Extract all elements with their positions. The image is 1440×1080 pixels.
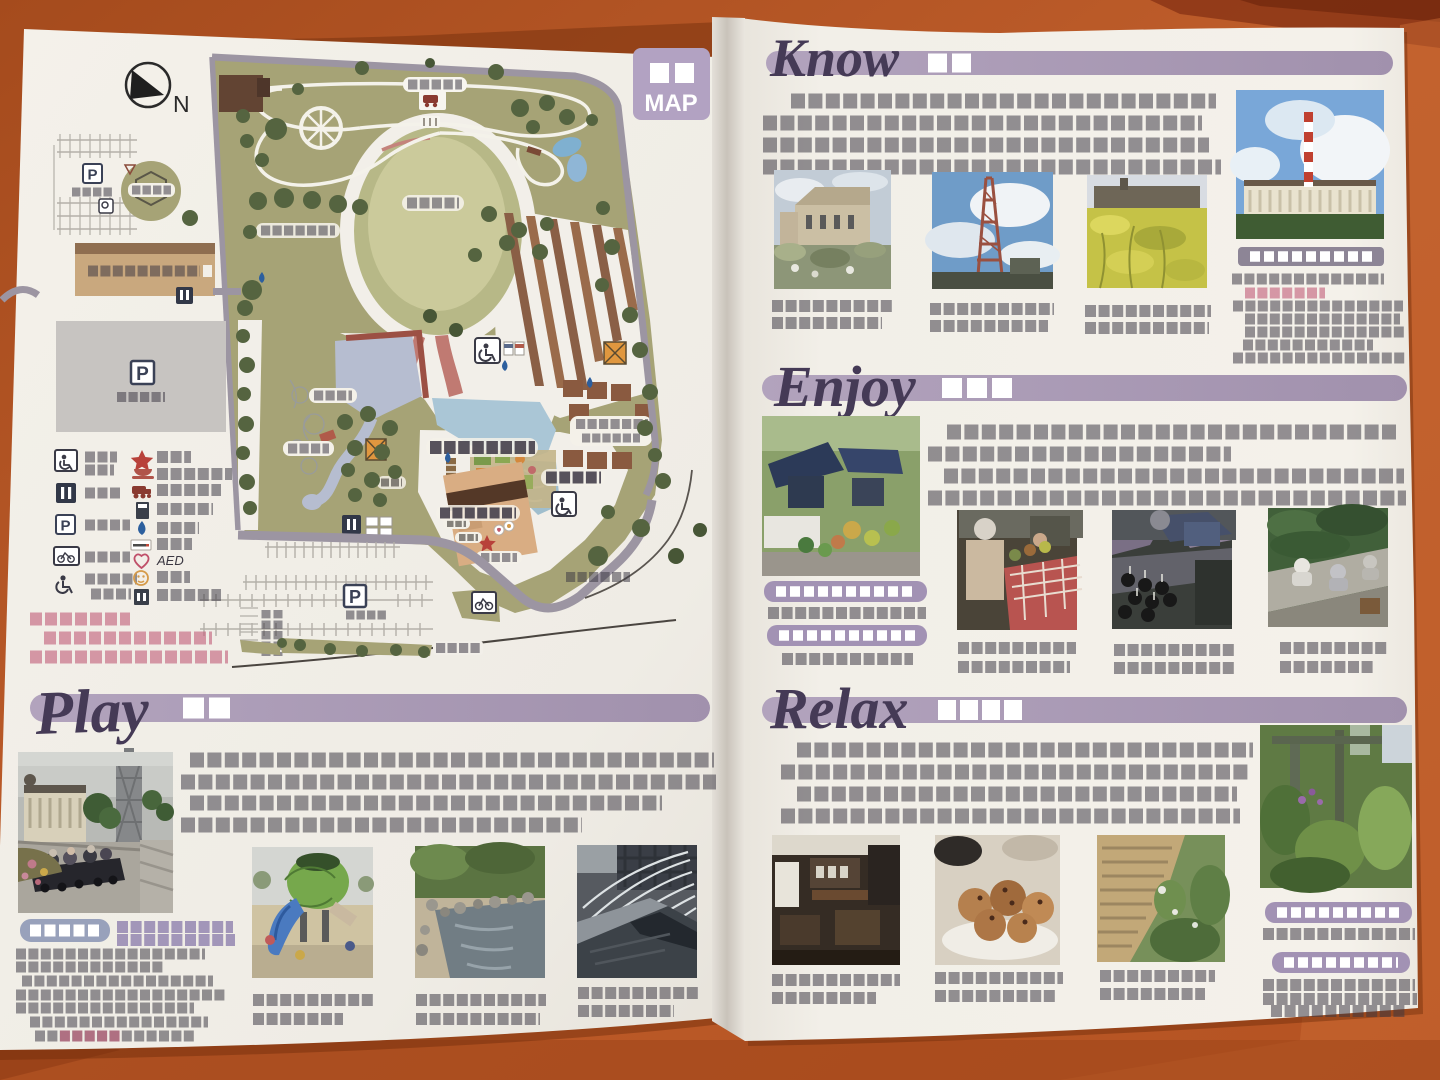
svg-text:N: N <box>173 91 190 117</box>
svg-text:P: P <box>87 167 97 184</box>
svg-text:Relax: Relax <box>769 676 909 741</box>
svg-text:P: P <box>136 364 149 385</box>
svg-text:MAP: MAP <box>644 90 697 117</box>
svg-text:AED: AED <box>156 553 184 568</box>
svg-text:Know: Know <box>769 28 900 88</box>
svg-text:P: P <box>60 518 70 535</box>
svg-text:Enjoy: Enjoy <box>773 354 916 419</box>
svg-text:P: P <box>349 587 361 607</box>
svg-text:Play: Play <box>33 676 150 748</box>
